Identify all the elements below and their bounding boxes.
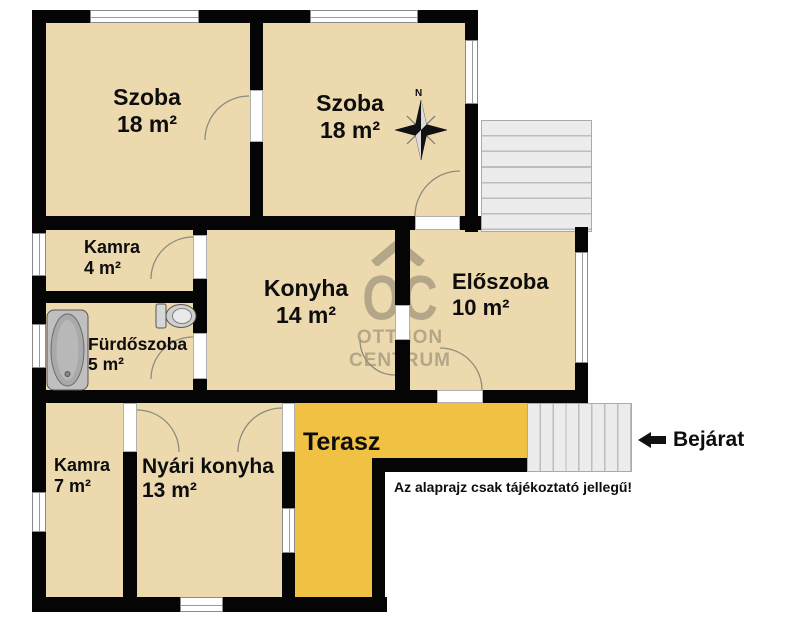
window [32,324,46,368]
label-terasz: Terasz [303,428,380,457]
label-furdoszoba: Fürdőszoba 5 m² [88,334,187,375]
window [180,597,223,612]
window [282,508,295,553]
compass-north-label: N [415,88,422,99]
door-opening [415,216,460,230]
window [310,10,418,23]
window [465,40,478,104]
label-kamra-2: Kamra 7 m² [54,455,110,497]
label-konyha: Konyha 14 m² [250,275,362,328]
label-szoba-2: Szoba 18 m² [295,90,405,143]
stairs-back [481,120,592,232]
door-opening [282,403,295,452]
disclaimer-text: Az alaprajz csak tájékoztató jellegű! [394,479,632,495]
label-nyari-konyha: Nyári konyha 13 m² [142,455,274,504]
wall [32,291,207,303]
door-opening [437,390,483,403]
entrance-label: Bejárat [673,428,744,452]
door-opening [193,235,207,279]
door-opening [395,305,410,340]
window [575,252,588,363]
door-opening [193,333,207,379]
label-eloszoba: Előszoba 10 m² [452,269,549,320]
room-kamra-2 [46,403,123,597]
window [32,233,46,276]
entrance-arrow-shaft [650,436,666,444]
floor-plan: OC OTTHON CENTRUM [0,0,800,623]
label-szoba-1: Szoba 18 m² [92,84,202,137]
label-kamra-1: Kamra 4 m² [84,237,140,279]
room-terasz-column [295,458,372,597]
window [90,10,199,23]
door-opening [123,403,137,452]
wall [32,390,588,403]
wall [372,458,385,612]
stairs-entrance [527,403,632,472]
wall [32,216,481,230]
wall [372,458,527,472]
door-opening [250,90,263,142]
window [32,492,46,532]
